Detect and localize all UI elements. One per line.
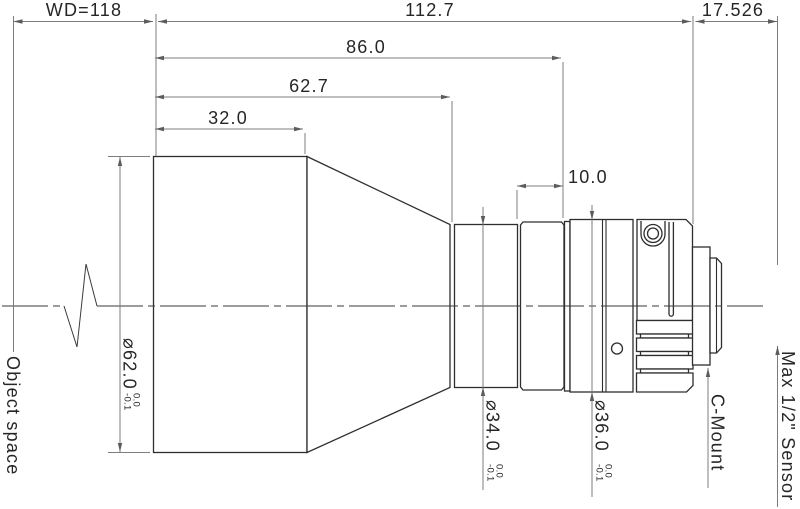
front-barrel	[154, 157, 308, 453]
dia-rear-label: ⌀36.0	[592, 400, 612, 452]
dim-32-label: 32.0	[208, 108, 248, 128]
dim-working-distance-label: WD=118	[46, 0, 122, 20]
dim-flange-distance-label: 17.526	[702, 0, 764, 20]
c-mount-label: C-Mount	[708, 394, 728, 471]
break-symbol	[64, 264, 97, 347]
dia-mid-label: ⌀34.0	[483, 400, 503, 452]
lens-body	[154, 157, 722, 453]
lens-technical-drawing: WD=118 112.7 17.526 86.0 62.7 32.0 10.0 …	[0, 0, 800, 509]
dia-front-tol-lower: -0.1	[122, 393, 133, 411]
dim-62-7-label: 62.7	[289, 76, 329, 96]
dia-mid-tol-lower: -0.1	[485, 464, 496, 482]
clamp-screw-socket	[648, 228, 659, 239]
set-screw	[612, 343, 623, 354]
dia-rear-tol-lower: -0.1	[594, 464, 605, 482]
dim-86-label: 86.0	[346, 37, 386, 57]
dia-front-label: ⌀62.0	[120, 338, 140, 390]
max-sensor-label: Max 1/2" Sensor	[778, 351, 798, 501]
rear-element-housing	[710, 258, 722, 353]
index-slot	[669, 222, 673, 316]
object-space-label: Object space	[3, 356, 23, 475]
grip-knurling	[637, 321, 694, 393]
taper-cone	[307, 157, 450, 453]
drawing-canvas: WD=118 112.7 17.526 86.0 62.7 32.0 10.0 …	[0, 0, 800, 509]
dim-10-label: 10.0	[568, 167, 608, 187]
dim-overall-length-label: 112.7	[405, 0, 455, 20]
